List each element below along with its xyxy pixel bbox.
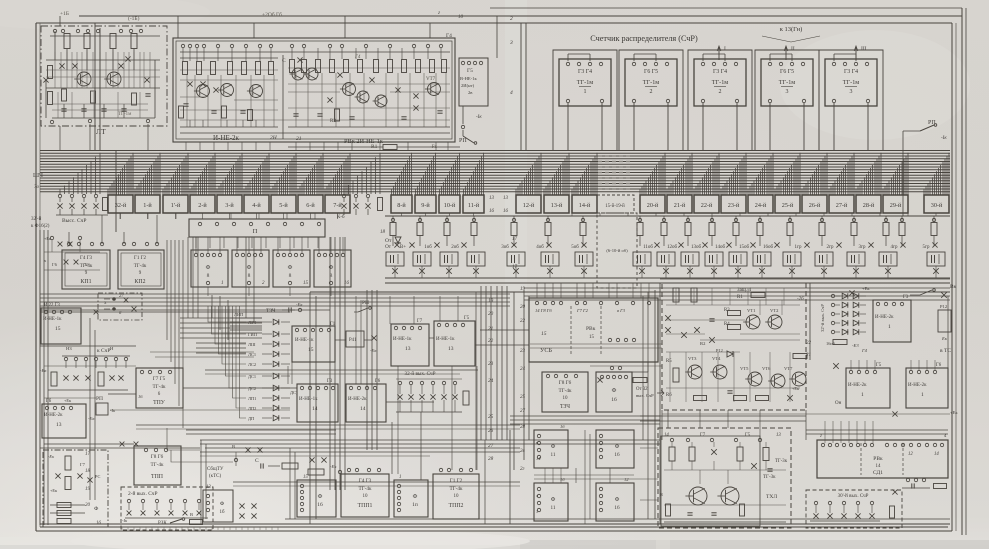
svg-text:32'-й вых. СчР: 32'-й вых. СчР — [820, 304, 825, 332]
svg-text:ТГ-1м: ТГ-1м — [118, 112, 132, 117]
svg-text:Г4 Г3: Г4 Г3 — [80, 256, 93, 261]
svg-text:25: 25 — [488, 414, 494, 420]
svg-text:13: 13 — [489, 196, 495, 201]
svg-text:Р12: Р12 — [940, 304, 948, 309]
svg-text:Ф: Ф — [551, 497, 556, 503]
svg-text:ТГ-4к: ТГ-4к — [558, 388, 571, 394]
svg-text:17: 17 — [512, 265, 518, 270]
svg-text:12: 12 — [908, 452, 913, 457]
svg-text:27-й: 27-й — [836, 202, 848, 209]
svg-text:20: 20 — [85, 503, 91, 508]
svg-text:ЛШ: ЛШ — [248, 342, 256, 347]
svg-text:28: 28 — [520, 425, 526, 430]
svg-text:2: 2 — [719, 89, 722, 95]
svg-text:14: 14 — [664, 433, 669, 438]
svg-text:ТГ-4к: ТГ-4к — [150, 462, 163, 468]
svg-text:ДП: ДП — [248, 416, 255, 421]
svg-text:Ек: Ек — [941, 336, 948, 341]
svg-text:Г4: Г4 — [354, 55, 361, 60]
svg-text:III: III — [861, 46, 867, 52]
svg-text:Ф: Ф — [94, 506, 99, 512]
svg-text:8-й: 8-й — [397, 202, 406, 209]
svg-text:28-й: 28-й — [863, 202, 875, 209]
svg-text:15: 15 — [303, 475, 308, 480]
svg-text:В+: В+ — [400, 245, 406, 250]
svg-text:И-НЕ-1к: И-НЕ-1к — [43, 317, 62, 322]
svg-text:ТГ-1м: ТГ-1м — [843, 79, 860, 86]
svg-text:11: 11 — [551, 452, 556, 458]
svg-text:23: 23 — [488, 361, 494, 367]
svg-text:Ф: Ф — [288, 265, 293, 271]
svg-text:Г4 Г3: Г4 Г3 — [359, 478, 372, 484]
svg-text:32-й вых. СчР: 32-й вых. СчР — [405, 370, 436, 377]
svg-text:ТГ-1м: ТГ-1м — [779, 79, 796, 86]
svg-text:От 32': От 32' — [636, 387, 649, 392]
svg-text:16: 16 — [503, 209, 509, 214]
svg-text:ЛИП: ЛИП — [234, 312, 244, 317]
svg-text:Р12: Р12 — [716, 348, 723, 353]
svg-text:+Ек: +Ек — [862, 286, 870, 291]
svg-text:ЛС2: ЛС2 — [248, 362, 256, 367]
svg-text:-Iк: -Iк — [941, 136, 947, 141]
svg-text:14: 14 — [934, 452, 939, 457]
svg-text:2об: 2об — [451, 245, 459, 250]
svg-text:23: 23 — [520, 349, 526, 354]
svg-text:1п: 1п — [412, 502, 418, 508]
svg-text:VT4: VT4 — [712, 356, 721, 361]
svg-text:8: 8 — [289, 273, 292, 279]
svg-text:2г: 2г — [520, 467, 525, 472]
svg-text:20: 20 — [488, 311, 494, 317]
svg-text:16: 16 — [317, 502, 323, 508]
svg-text:19: 19 — [520, 287, 526, 292]
svg-text:ТХЛ: ТХЛ — [766, 494, 777, 500]
svg-text:в Г3: в Г3 — [617, 308, 626, 313]
svg-text:ЛП1: ЛП1 — [248, 396, 256, 401]
svg-text:-Ек: -Ек — [330, 464, 337, 469]
svg-text:1гр: 1гр — [794, 245, 802, 250]
svg-text:СбщТУ: СбщТУ — [207, 467, 224, 472]
svg-text:5гр: 5гр — [922, 245, 930, 250]
svg-text:РП: РП — [459, 138, 467, 144]
svg-text:20: 20 — [520, 305, 526, 310]
svg-text:16об: 16об — [826, 341, 836, 346]
svg-text:От: От — [385, 238, 392, 244]
svg-text:И-НЕ-2к: И-НЕ-2к — [213, 134, 240, 142]
svg-text:12-й: 12-й — [523, 202, 535, 209]
svg-text:R2: R2 — [330, 119, 336, 124]
svg-text:4-й: 4-й — [252, 202, 261, 209]
svg-text:КП1: КП1 — [81, 279, 92, 285]
svg-text:В-НЕ-1к: В-НЕ-1к — [460, 76, 478, 81]
svg-text:21: 21 — [296, 136, 302, 142]
svg-text:R1: R1 — [737, 295, 743, 300]
svg-text:15: 15 — [303, 281, 309, 286]
svg-text:25: 25 — [520, 395, 526, 400]
svg-text:И-НЕ-1к: И-НЕ-1к — [393, 337, 412, 342]
svg-text:14-й: 14-й — [579, 202, 591, 209]
svg-text:Ф: Ф — [220, 501, 225, 507]
svg-text:2-й: 2-й — [198, 202, 207, 209]
svg-text:2Н: 2Н — [270, 135, 278, 141]
svg-text:1: 1 — [221, 281, 224, 286]
svg-text:32'-й: 32'-й — [31, 217, 42, 222]
svg-text:20-й: 20-й — [647, 202, 659, 209]
svg-text:Г5: Г5 — [464, 316, 470, 321]
svg-text:ТЗЧ: ТЗЧ — [266, 308, 276, 314]
svg-text:+Ек: +Ек — [950, 410, 958, 415]
svg-text:Г3 Г4: Г3 Г4 — [578, 69, 592, 75]
svg-text:И-НЕ-2к: И-НЕ-2к — [848, 383, 867, 388]
svg-text:9-й: 9-й — [421, 202, 430, 209]
svg-text:11-й: 11-й — [468, 202, 480, 209]
svg-text:К-б: К-б — [337, 215, 345, 220]
svg-text:Ф: Ф — [413, 494, 418, 500]
svg-text:8: 8 — [207, 273, 210, 279]
svg-text:Г6: Г6 — [936, 363, 942, 368]
svg-text:12: 12 — [624, 477, 629, 482]
svg-text:23-й: 23-й — [728, 202, 740, 209]
svg-text:18: 18 — [380, 230, 386, 235]
svg-text:ТГ-3к: ТГ-3к — [775, 459, 788, 464]
svg-text:1: 1 — [584, 89, 587, 95]
svg-text:13об: 13об — [691, 245, 702, 250]
svg-text:10: 10 — [458, 15, 464, 20]
svg-text:к 13(Гн): к 13(Гн) — [780, 26, 803, 33]
svg-text:4об: 4об — [536, 245, 544, 250]
svg-text:14: 14 — [876, 464, 882, 469]
svg-text:ДС2: ДС2 — [248, 386, 256, 391]
svg-text:Г7: Г7 — [700, 433, 706, 438]
svg-text:НЗ: НЗ — [66, 346, 72, 351]
svg-text:к Ф16(2): к Ф16(2) — [31, 224, 50, 229]
svg-text:19: 19 — [488, 298, 494, 304]
svg-text:Г6: Г6 — [375, 379, 381, 384]
svg-text:Ф: Ф — [612, 388, 617, 394]
svg-text:14 Г8 Гб: 14 Г8 Гб — [535, 308, 552, 313]
svg-text:16: 16 — [614, 505, 620, 511]
svg-text:В: В — [190, 512, 193, 517]
svg-text:12об: 12об — [667, 245, 678, 250]
svg-text:10: 10 — [454, 494, 460, 499]
svg-text:15: 15 — [55, 326, 61, 332]
svg-text:Г7: Г7 — [80, 462, 86, 467]
svg-text:Г6 Г5: Г6 Г5 — [780, 69, 794, 75]
svg-text:13: 13 — [206, 485, 211, 490]
svg-text:Ф: Ф — [615, 444, 620, 450]
svg-text:24: 24 — [520, 367, 526, 372]
svg-text:1б: 1б — [219, 510, 225, 515]
svg-text:6-й: 6-й — [306, 202, 315, 209]
svg-text:13: 13 — [503, 196, 509, 201]
svg-text:13: 13 — [405, 346, 411, 352]
svg-text:10: 10 — [363, 494, 369, 499]
svg-text:РП: РП — [928, 120, 936, 126]
svg-text:КП2: КП2 — [135, 279, 146, 285]
svg-text:24: 24 — [488, 377, 494, 384]
svg-text:R2: R2 — [700, 341, 706, 346]
svg-text:вых. СчР: вых. СчР — [636, 393, 654, 398]
svg-text:ТПП1: ТПП1 — [358, 503, 373, 509]
svg-text:I: I — [724, 46, 726, 52]
svg-text:30-й: 30-й — [931, 202, 943, 209]
svg-text:И-НЕ-2к: И-НЕ-2к — [44, 413, 63, 418]
svg-text:1: 1 — [399, 475, 401, 480]
svg-text:И-НЕ-1к: И-НЕ-1к — [436, 337, 455, 342]
svg-text:13: 13 — [448, 346, 454, 352]
svg-text:-26: -26 — [797, 297, 804, 302]
svg-text:СД1: СД1 — [873, 470, 883, 476]
svg-text:От: От — [385, 245, 392, 250]
svg-text:ТЗЧ: ТЗЧ — [560, 404, 570, 410]
svg-text:13: 13 — [776, 433, 781, 438]
svg-text:Г1 Г2: Г1 Г2 — [134, 256, 147, 261]
svg-text:3: 3 — [850, 89, 853, 95]
svg-text:21: 21 — [488, 326, 494, 332]
svg-text:Ф: Ф — [247, 265, 252, 271]
svg-text:Г5: Г5 — [745, 433, 751, 438]
svg-text:С: С — [255, 458, 259, 464]
svg-text:25-й: 25-й — [782, 202, 794, 209]
svg-text:Ф: Ф — [329, 265, 334, 271]
svg-text:П: П — [253, 228, 258, 235]
svg-text:Ф: Ф — [206, 265, 211, 271]
svg-text:Защ. 4: Защ. 4 — [737, 287, 751, 293]
svg-text:2-й вых. СчР: 2-й вых. СчР — [128, 490, 158, 497]
svg-text:Г3: Г3 — [903, 295, 909, 300]
svg-text:VT7: VT7 — [426, 77, 436, 82]
svg-text:5об: 5об — [571, 245, 579, 250]
svg-text:7о: 7о — [34, 185, 40, 190]
svg-text:ДС): ДС) — [290, 390, 298, 395]
svg-text:1'-й: 1'-й — [171, 202, 181, 209]
svg-text:-Ек: -Ек — [296, 302, 303, 307]
svg-text:4гр: 4гр — [890, 245, 898, 250]
svg-text:16: 16 — [611, 397, 617, 403]
svg-text:в ТС: в ТС — [940, 348, 951, 354]
svg-text:-Iк: -Iк — [476, 115, 482, 120]
svg-text:Г7: Г7 — [417, 319, 423, 324]
svg-text:11об: 11об — [643, 245, 653, 250]
svg-text:Г8 Г6: Г8 Г6 — [559, 380, 572, 386]
svg-text:-Iк: -Iк — [110, 408, 116, 413]
svg-text:РВк 2И-НЕ-1к: РВк 2И-НЕ-1к — [344, 138, 384, 145]
svg-text:РЗК: РЗК — [158, 521, 167, 526]
svg-text:ТПУ: ТПУ — [153, 400, 166, 406]
svg-text:Ф: Ф — [318, 494, 323, 500]
svg-text:Г4: Г4 — [446, 33, 452, 39]
svg-text:ЛТ: ЛТ — [96, 127, 106, 136]
svg-text:R6: R6 — [666, 393, 672, 398]
svg-text:VT2: VT2 — [770, 308, 779, 313]
svg-text:21-й: 21-й — [674, 202, 686, 209]
svg-text:29-й: 29-й — [890, 202, 902, 209]
svg-text:2: 2 — [510, 16, 513, 22]
svg-text:ШЧ: ШЧ — [33, 173, 43, 179]
svg-text:ТГ-3к: ТГ-3к — [763, 475, 776, 480]
svg-text:15: 15 — [589, 335, 595, 340]
svg-text:24-й: 24-й — [755, 202, 767, 209]
svg-text:14: 14 — [360, 406, 366, 412]
svg-text:к СчР: к СчР — [97, 348, 110, 354]
svg-text:-Ек: -Ек — [370, 348, 377, 353]
svg-text:3: 3 — [786, 89, 789, 95]
svg-text:4: 4 — [510, 89, 513, 96]
svg-text:22-й: 22-й — [701, 202, 713, 209]
svg-text:ТГ-4к: ТГ-4к — [358, 486, 371, 492]
svg-text:28: 28 — [488, 456, 494, 462]
svg-text:II: II — [791, 46, 795, 52]
svg-text:VT3: VT3 — [688, 356, 697, 361]
svg-text:22: 22 — [520, 319, 526, 324]
svg-text:(-1Б): (-1Б) — [128, 15, 140, 22]
svg-text:+Ек: +Ек — [792, 386, 800, 391]
svg-text:15об: 15об — [739, 245, 750, 250]
svg-text:Ф: Ф — [615, 497, 620, 503]
svg-text:Гб: Гб — [46, 399, 52, 404]
svg-text:ТГ-4к: ТГ-4к — [152, 384, 165, 390]
svg-text:+Ек: +Ек — [50, 488, 58, 493]
svg-text:30'-й вых. СчР: 30'-й вых. СчР — [838, 494, 869, 499]
svg-text:15-й-19-й: 15-й-19-й — [605, 204, 625, 209]
svg-text:16: 16 — [96, 521, 102, 526]
svg-text:ТГ-1м: ТГ-1м — [643, 79, 660, 86]
svg-text:Г8 Г6: Г8 Г6 — [151, 454, 164, 460]
svg-text:ДС1: ДС1 — [248, 374, 256, 379]
svg-text:VT7: VT7 — [784, 366, 793, 371]
svg-text:РП: РП — [96, 396, 103, 402]
svg-text:27: 27 — [520, 409, 526, 414]
svg-text:Г1 Г2: Г1 Г2 — [450, 478, 463, 484]
svg-text:И 22 Г3: И 22 Г3 — [44, 303, 60, 308]
svg-text:R5: R5 — [666, 359, 672, 364]
svg-text:-Iк: -Iк — [122, 518, 128, 523]
svg-text:Г6: Г6 — [52, 262, 58, 267]
svg-text:+2Об Гб: +2Об Гб — [262, 11, 282, 18]
svg-text:VT5: VT5 — [740, 366, 749, 371]
svg-text:1: 1 — [861, 392, 864, 398]
svg-text:И-НЕ-1к: И-НЕ-1к — [299, 397, 318, 402]
svg-text:15: 15 — [541, 331, 547, 337]
svg-text:1: 1 — [921, 392, 924, 398]
svg-text:1б: 1б — [560, 424, 565, 429]
svg-text:г: г — [820, 434, 822, 439]
svg-text:ТГ-4к: ТГ-4к — [134, 264, 147, 269]
svg-text:-Ек: -Ек — [48, 454, 55, 459]
svg-text:+Ек: +Ек — [64, 398, 72, 403]
svg-text:С: С — [282, 58, 286, 64]
svg-text:-Ек: -Ек — [88, 416, 95, 421]
svg-text:10-й: 10-й — [444, 202, 456, 209]
svg-text:3об: 3об — [501, 245, 509, 250]
svg-text:ТГ-1м: ТГ-1м — [577, 79, 594, 86]
svg-text:ЛЗЧ: ЛЗЧ — [248, 320, 256, 325]
svg-text:Г1: Г1 — [330, 322, 336, 327]
svg-text:15: 15 — [308, 347, 314, 353]
svg-text:17: 17 — [512, 237, 518, 242]
svg-text:Ф: Ф — [551, 444, 556, 450]
svg-text:32-й: 32-й — [115, 202, 127, 209]
svg-text:(кТС): (кТС) — [209, 474, 221, 479]
svg-text:8: 8 — [248, 273, 251, 279]
svg-text:13-й: 13-й — [551, 202, 563, 209]
svg-text:ТГ-1м: ТГ-1м — [712, 79, 729, 86]
svg-text:Г7 Г5: Г7 Г5 — [153, 376, 166, 382]
svg-text:R: R — [660, 492, 663, 497]
svg-text:22: 22 — [806, 341, 812, 346]
svg-text:14: 14 — [312, 406, 318, 412]
svg-text:26-й: 26-й — [809, 202, 821, 209]
svg-text:14об: 14об — [715, 245, 726, 250]
svg-text:Г4: Г4 — [861, 348, 868, 353]
svg-text:Г3 Г4: Г3 Г4 — [713, 69, 727, 75]
svg-text:-Е3: -Е3 — [852, 343, 859, 348]
svg-text:-Ек: -Ек — [40, 368, 47, 373]
svg-text:1об: 1об — [424, 245, 432, 250]
svg-text:И-НЕ-2к: И-НЕ-2к — [875, 315, 894, 320]
svg-text:РВк: РВк — [586, 326, 596, 332]
svg-text:1-й: 1-й — [143, 202, 152, 209]
svg-text:И-НЕ-2к: И-НЕ-2к — [908, 383, 927, 388]
svg-text:1: 1 — [888, 324, 891, 330]
svg-text:-Fк: -Fк — [430, 145, 437, 150]
svg-text:И-НЕ-2к: И-НЕ-2к — [348, 397, 367, 402]
svg-text:3-й: 3-й — [225, 202, 234, 209]
svg-text:13: 13 — [56, 422, 62, 428]
svg-text:ТПП2: ТПП2 — [449, 503, 464, 509]
svg-text:2И(нт): 2И(нт) — [461, 83, 475, 88]
svg-text:Г3: Г3 — [327, 379, 333, 384]
svg-text:Г5: Г5 — [876, 363, 882, 368]
svg-text:3гр: 3гр — [858, 245, 866, 250]
svg-text:+1Б: +1Б — [60, 11, 69, 17]
svg-text:РН: РН — [362, 300, 369, 306]
svg-text:16об: 16об — [763, 245, 774, 250]
svg-text:Счетчик распределителя (СчР): Счетчик распределителя (СчР) — [590, 34, 698, 43]
svg-text:27: 27 — [119, 293, 124, 298]
svg-text:И-НЕ-1к: И-НЕ-1к — [295, 338, 314, 343]
svg-text:16: 16 — [138, 394, 143, 399]
svg-text:5-й: 5-й — [279, 202, 288, 209]
svg-text:16: 16 — [489, 209, 495, 214]
svg-text:Г3 Г4: Г3 Г4 — [844, 69, 858, 75]
svg-text:Г6 Г5: Г6 Г5 — [644, 69, 658, 75]
svg-text:(6-10-й об): (6-10-й об) — [606, 248, 628, 253]
svg-text:7-й: 7-й — [333, 202, 342, 209]
svg-text:16: 16 — [614, 452, 620, 458]
svg-text:РС: РС — [95, 474, 100, 479]
svg-text:22: 22 — [488, 338, 494, 344]
svg-text:ЛС1: ЛС1 — [248, 352, 256, 357]
svg-text:Высс. СчР: Высс. СчР — [62, 218, 86, 224]
svg-text:10: 10 — [563, 396, 569, 401]
svg-text:РВк: РВк — [873, 456, 883, 462]
svg-text:ТГ-4к: ТГ-4к — [449, 486, 462, 492]
svg-text:3: 3 — [509, 40, 513, 46]
svg-text:Г5: Г5 — [467, 68, 473, 74]
svg-text:Он: Он — [835, 401, 842, 406]
svg-text:ТПП: ТПП — [151, 474, 164, 480]
svg-text:11: 11 — [551, 505, 556, 511]
svg-text:Г7 Г2: Г7 Г2 — [576, 308, 589, 313]
svg-text:2гр: 2гр — [826, 245, 834, 250]
svg-text:2: 2 — [650, 89, 653, 95]
svg-text:VT1: VT1 — [747, 308, 756, 313]
